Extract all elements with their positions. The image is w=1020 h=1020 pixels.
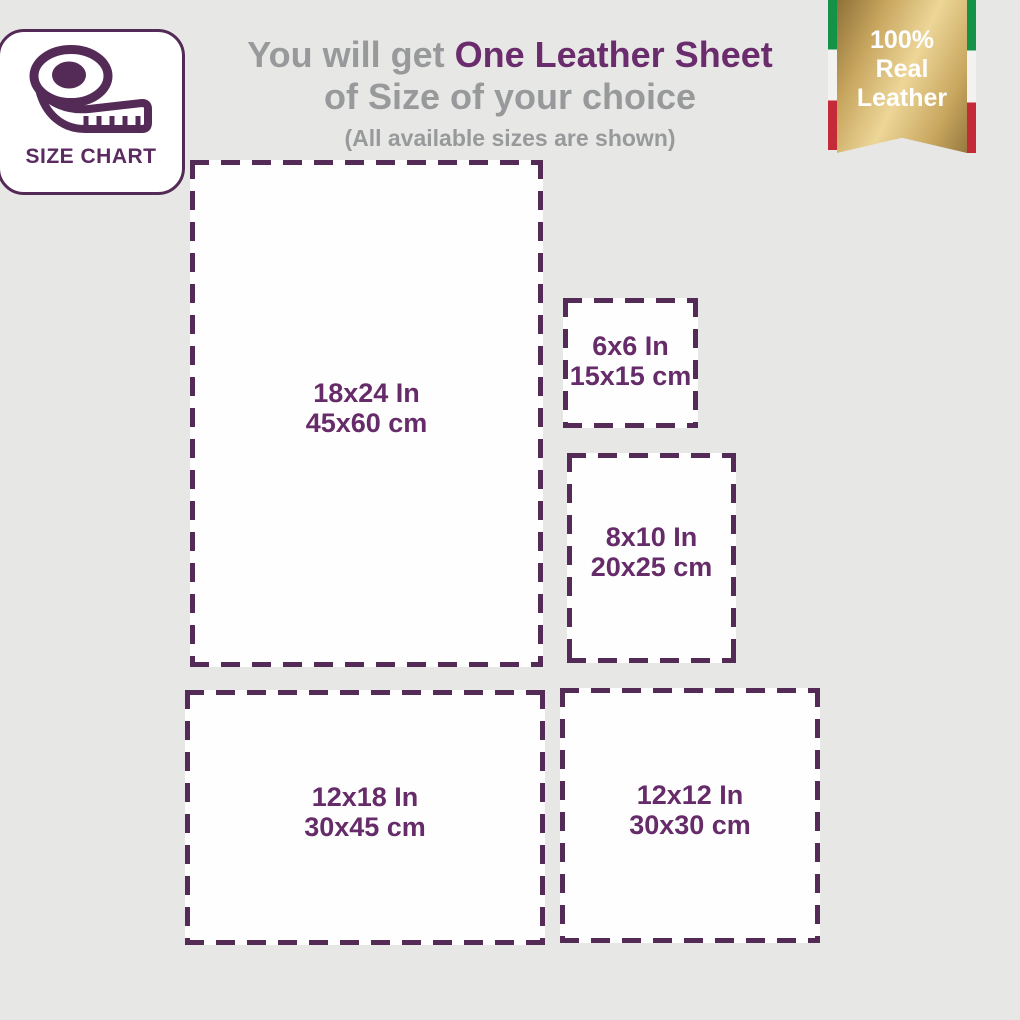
ribbon-flag-stripe-left (828, 0, 837, 150)
ribbon-line-3: Leather (837, 84, 967, 113)
ribbon-flag-stripe-right (967, 0, 976, 153)
size-label: 12x12 In 30x30 cm (629, 780, 751, 840)
size-chart-infographic: SIZE CHART You will get One Leather Shee… (0, 0, 1020, 1020)
size-inches: 18x24 In (306, 378, 428, 408)
size-label: 6x6 In 15x15 cm (570, 331, 692, 391)
size-inches: 12x12 In (629, 780, 751, 810)
size-label: 18x24 In 45x60 cm (306, 378, 428, 438)
size-label: 12x18 In 30x45 cm (304, 782, 426, 842)
size-box-6x6: 6x6 In 15x15 cm (563, 298, 698, 428)
title-prefix: You will get (247, 34, 454, 75)
size-label: 8x10 In 20x25 cm (591, 522, 713, 582)
size-cm: 45x60 cm (306, 408, 428, 438)
ribbon-line-1: 100% (837, 26, 967, 55)
size-box-12x18: 12x18 In 30x45 cm (185, 690, 545, 945)
size-inches: 12x18 In (304, 782, 426, 812)
size-cm: 20x25 cm (591, 552, 713, 582)
size-cm: 30x45 cm (304, 812, 426, 842)
size-cm: 30x30 cm (629, 810, 751, 840)
size-box-18x24: 18x24 In 45x60 cm (190, 160, 543, 667)
real-leather-ribbon: 100% Real Leather (828, 0, 976, 156)
ribbon-label: 100% Real Leather (837, 0, 967, 113)
ribbon-line-2: Real (837, 55, 967, 84)
size-box-12x12: 12x12 In 30x30 cm (560, 688, 820, 943)
size-cm: 15x15 cm (570, 361, 692, 391)
size-inches: 6x6 In (570, 331, 692, 361)
size-inches: 8x10 In (591, 522, 713, 552)
ribbon-gold-banner: 100% Real Leather (837, 0, 967, 153)
title-highlight: One Leather Sheet (455, 34, 773, 75)
size-box-8x10: 8x10 In 20x25 cm (567, 453, 736, 663)
